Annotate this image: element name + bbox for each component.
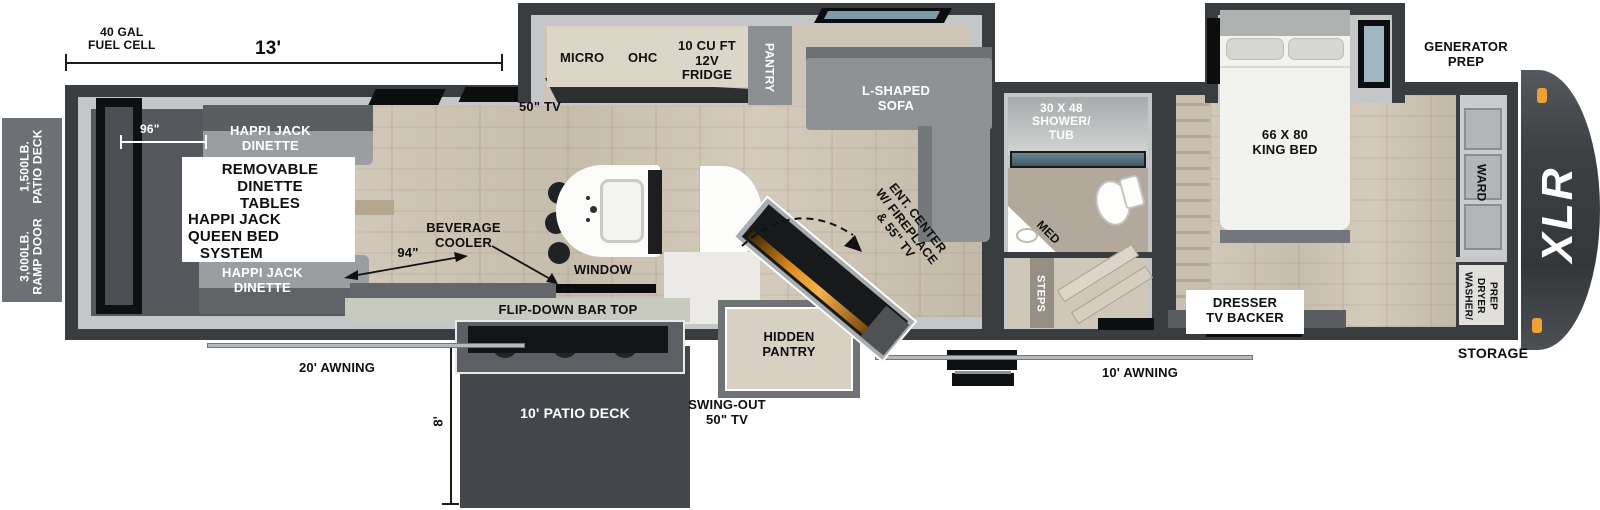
tv-50-label: 50" TV [505, 100, 575, 115]
pantry-label: PANTRY [762, 36, 775, 100]
washer-dryer-label: WASHER/ DRYER PREP [1461, 268, 1499, 324]
bedroom-window-right-glass [1364, 26, 1384, 82]
bar-counter [468, 326, 668, 353]
xlr-logo: XLR [1530, 154, 1586, 274]
dim-8ft-label: 8' [432, 406, 447, 436]
beverage-cooler-label: BEVERAGECOOLER [416, 221, 511, 250]
galley-window [556, 284, 656, 293]
wardrobe-shelf-1 [1464, 108, 1502, 150]
marker-light-bottom [1532, 318, 1542, 333]
entry-step-edge [955, 371, 1011, 374]
awning-10-label: 10' AWNING [1080, 366, 1200, 381]
king-bed-label: 66 X 80KING BED [1226, 128, 1344, 157]
tv-50-shape-left [368, 89, 445, 105]
generator-prep-label: GENERATORPREP [1410, 40, 1522, 69]
queen-bed-system-label: HAPPI JACKQUEEN BEDSYSTEM [188, 212, 281, 262]
island-cooktop [648, 170, 662, 254]
sink-faucet [590, 206, 597, 213]
vanity-sink [1016, 228, 1038, 243]
window-label: WINDOW [560, 263, 646, 278]
awning-20-label: 20' AWNING [277, 361, 397, 376]
island-sink [600, 179, 644, 243]
sofa-label: L-SHAPEDSOFA [862, 84, 930, 113]
hidden-pantry-label: HIDDENPANTRY [722, 330, 856, 359]
shower-label: 30 X 48SHOWER/TUB [1032, 102, 1091, 142]
ward-label: WARD [1474, 155, 1487, 211]
dresser-label: DRESSERTV BACKER [1190, 296, 1300, 325]
dinette-top-label: HAPPI JACKDINETTE [230, 124, 311, 153]
removable-tables-label: REMOVABLEDINETTETABLES [200, 162, 340, 212]
bed-pillow-right [1288, 38, 1344, 60]
ramp-door [96, 98, 142, 314]
island-stool-3 [548, 242, 570, 264]
dim-96-tick-right [205, 135, 207, 149]
swing-out-tv-label: SWING-OUT50" TV [667, 398, 787, 427]
ohc-label: OHC [628, 51, 658, 66]
dim-96-tick-left [120, 135, 122, 149]
shower-glass [1010, 151, 1146, 168]
flip-bar-label: FLIP-DOWN BAR TOP [470, 303, 666, 318]
steps-label: STEPS [1034, 266, 1046, 322]
awning-20-line [207, 343, 525, 348]
dim-13ft-tick-left [65, 54, 67, 71]
fuel-cell-label: 40 GALFUEL CELL [88, 26, 156, 53]
entry-step-lower [952, 373, 1014, 386]
storage-label: STORAGE [1443, 346, 1543, 362]
bed-pillow-left [1226, 38, 1284, 60]
dim-96-line [120, 141, 207, 143]
bed-sheet-line [1220, 66, 1350, 68]
dim-13ft-line [65, 62, 503, 64]
awning-10-line [875, 355, 1253, 360]
dim-13ft-label: 13' [255, 38, 281, 59]
floorplan-canvas: 40 GALFUEL CELL 13' 1,500LB.PATIO DECK 3… [0, 0, 1600, 510]
marker-light-top [1537, 88, 1547, 103]
sink-handle-2 [586, 218, 590, 222]
dim-96-label: 96" [140, 123, 160, 136]
ramp-capacity-label: 3,000LB.RAMP DOOR [19, 201, 46, 311]
kitchen-slide-window-glass [824, 11, 940, 19]
sink-handle-1 [586, 196, 590, 200]
dim-94-label: 94" [388, 246, 428, 261]
bed-headboard [1220, 10, 1350, 36]
rear-counter [350, 283, 556, 298]
bed-footboard [1220, 230, 1350, 243]
patio-deck-label: 10' PATIO DECK [495, 406, 655, 422]
fridge-label: 10 CU FT12VFRIDGE [678, 39, 736, 83]
entry-step-upper [947, 350, 1017, 370]
micro-label: MICRO [560, 51, 604, 66]
dinette-bottom-label: HAPPI JACKDINETTE [222, 266, 303, 295]
dim-8ft-line [450, 347, 452, 505]
dim-13ft-tick-right [501, 54, 503, 71]
entry-floor-mat [1098, 318, 1154, 330]
dim-8ft-tick-bottom [442, 503, 459, 505]
